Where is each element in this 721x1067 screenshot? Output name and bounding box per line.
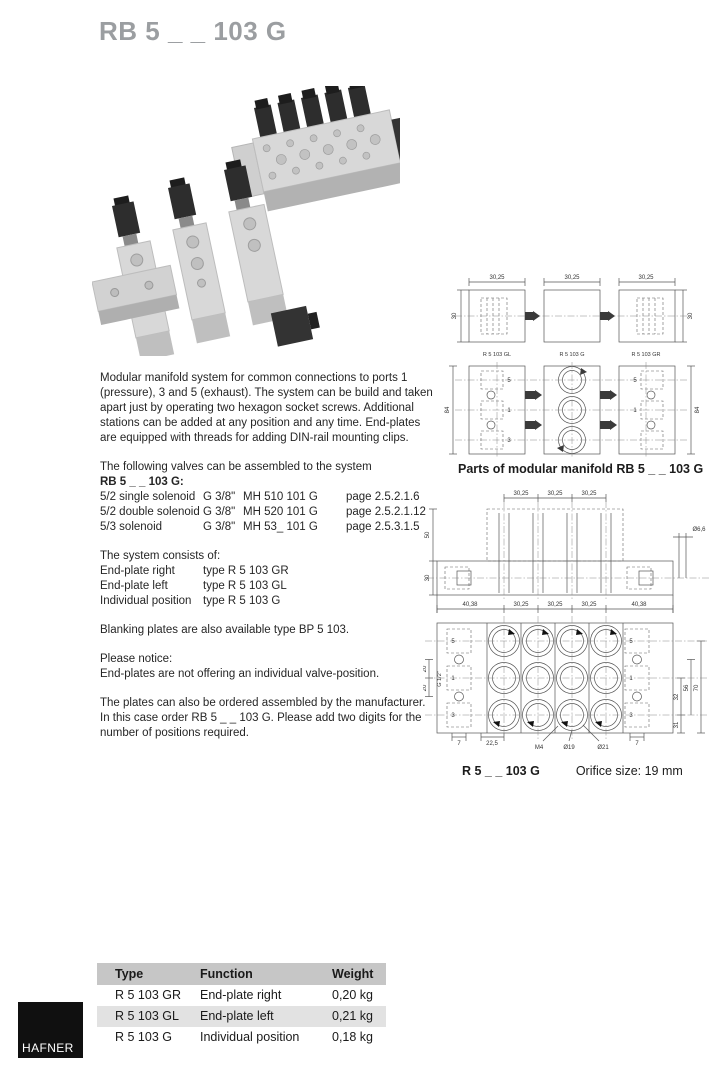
system-value: type R 5 103 G <box>203 594 433 609</box>
dim-label: 7 <box>635 741 639 747</box>
dim-label: 30,25 <box>581 491 597 497</box>
valve-type: MH 53_ 101 G <box>243 520 346 535</box>
port-number: 1 <box>629 676 633 682</box>
system-label: End-plate left <box>100 579 203 594</box>
port-number: 3 <box>629 713 633 719</box>
dim-label: 30,25 <box>489 275 505 281</box>
dim-label: 30,25 <box>581 602 597 608</box>
port-number: 5 <box>507 378 511 384</box>
hafner-logo: HAFNER <box>18 1002 83 1058</box>
dim-label: Ø21 <box>597 745 609 751</box>
dim-label: 30,25 <box>547 602 563 608</box>
dim-label: 50 <box>425 531 431 538</box>
valve-type: MH 520 101 G <box>243 505 346 520</box>
cell-function: Individual position <box>200 1027 332 1048</box>
valve-row: 5/2 single solenoid G 3/8" MH 510 101 G … <box>100 490 433 505</box>
dim-label: M4 <box>535 745 544 751</box>
cell-weight: 0,18 kg <box>332 1027 386 1048</box>
valve-row: 5/3 solenoid G 3/8" MH 53_ 101 G page 2.… <box>100 520 433 535</box>
system-row: Individual position type R 5 103 G <box>100 594 433 609</box>
dim-label: 30 <box>452 312 458 319</box>
valve-thread: G 3/8" <box>203 505 243 520</box>
catalog-page: RB 5 _ _ 103 G <box>0 0 721 1067</box>
dim-label: 84 <box>695 406 701 413</box>
valve-thread: G 3/8" <box>203 520 243 535</box>
port-number: 1 <box>451 676 455 682</box>
dim-label: 20 <box>423 665 428 672</box>
part-label: R 5 103 GR <box>631 352 660 358</box>
notice-title: Please notice: <box>100 652 433 667</box>
cell-type: R 5 103 GL <box>115 1006 200 1027</box>
fig1-caption: Parts of modular manifold RB 5 _ _ 103 G <box>458 462 703 476</box>
blanking-note: Blanking plates are also available type … <box>100 623 433 638</box>
system-label: Individual position <box>100 594 203 609</box>
dim-label: 32 <box>674 693 680 700</box>
cell-type: R 5 103 G <box>115 1027 200 1048</box>
system-value: type R 5 103 GL <box>203 579 433 594</box>
cell-function: End-plate left <box>200 1006 332 1027</box>
port-number: 3 <box>507 438 511 444</box>
system-value: type R 5 103 GR <box>203 564 433 579</box>
port-number: 5 <box>451 639 455 645</box>
dim-label: 20 <box>423 684 428 691</box>
fig-assembly-drawing: 30,25 30,25 30,25 50 30 Ø6,6 40,38 30,25… <box>423 483 715 757</box>
part-label: R 5 103 GL <box>483 352 511 358</box>
notice-body: End-plates are not offering an individua… <box>100 667 433 682</box>
port-number: 1 <box>633 408 637 414</box>
port-number: 5 <box>629 639 633 645</box>
dim-label: Ø19 <box>563 745 575 751</box>
body-text: Modular manifold system for common conne… <box>100 371 433 741</box>
system-row: End-plate left type R 5 103 GL <box>100 579 433 594</box>
dim-label: 30,25 <box>513 491 529 497</box>
valve-page: page 2.5.2.1.6 <box>346 490 433 505</box>
port-number: 3 <box>451 713 455 719</box>
part-label: R 5 103 G <box>559 352 584 358</box>
dim-label: 30,25 <box>547 491 563 497</box>
cell-weight: 0,20 kg <box>332 985 386 1006</box>
valve-function: 5/2 single solenoid <box>100 490 203 505</box>
thread-label: G 1/2" <box>437 671 443 686</box>
spec-table: Type Function Weight R 5 103 GR End-plat… <box>97 963 386 1048</box>
dim-label: 40,38 <box>631 602 647 608</box>
dim-label: 30,25 <box>638 275 654 281</box>
valve-row: 5/2 double solenoid G 3/8" MH 520 101 G … <box>100 505 433 520</box>
table-row: R 5 103 GR End-plate right 0,20 kg <box>97 985 386 1006</box>
dim-label: 56 <box>684 684 690 691</box>
dim-label: 30,25 <box>564 275 580 281</box>
fig-parts-drawing: 30,25 30,25 30,25 30 30 84 84 5 1 3 5 1 … <box>443 268 701 460</box>
valve-type: MH 510 101 G <box>243 490 346 505</box>
dim-label: Ø6,6 <box>692 527 706 533</box>
fig2-orifice: Orifice size: 19 mm <box>576 764 683 778</box>
cell-type: R 5 103 GR <box>115 985 200 1006</box>
product-photo <box>92 86 400 356</box>
fig2-caption: R 5 _ _ 103 G Orifice size: 19 mm <box>462 764 683 778</box>
dim-label: 70 <box>694 684 700 691</box>
valve-function: 5/3 solenoid <box>100 520 203 535</box>
header-type: Type <box>115 963 200 985</box>
system-row: End-plate right type R 5 103 GR <box>100 564 433 579</box>
port-number: 1 <box>507 408 511 414</box>
valve-function: 5/2 double solenoid <box>100 505 203 520</box>
fig2-type: R 5 _ _ 103 G <box>462 764 540 778</box>
logo-text: HAFNER <box>22 1041 74 1055</box>
ordering-note: The plates can also be ordered assembled… <box>100 696 433 741</box>
dim-label: 31 <box>674 721 680 728</box>
table-row: R 5 103 GL End-plate left 0,21 kg <box>97 1006 386 1027</box>
valves-lead-type: RB 5 _ _ 103 G: <box>100 475 433 490</box>
dim-label: 30 <box>425 574 431 581</box>
dim-label: 40,38 <box>462 602 478 608</box>
dim-label: 30 <box>688 312 694 319</box>
header-function: Function <box>200 963 332 985</box>
dim-label: 84 <box>445 406 451 413</box>
cell-weight: 0,21 kg <box>332 1006 386 1027</box>
port-number: 5 <box>633 378 637 384</box>
system-lead: The system consists of: <box>100 549 433 564</box>
page-title: RB 5 _ _ 103 G <box>99 16 287 47</box>
valve-page: page 2.5.2.1.12 <box>346 505 433 520</box>
system-label: End-plate right <box>100 564 203 579</box>
valves-lead: The following valves can be assembled to… <box>100 460 433 475</box>
valve-thread: G 3/8" <box>203 490 243 505</box>
valve-page: page 2.5.3.1.5 <box>346 520 433 535</box>
dim-label: 22,5 <box>486 741 498 747</box>
dim-label: 30,25 <box>513 602 529 608</box>
header-weight: Weight <box>332 963 386 985</box>
dim-label: 7 <box>457 741 461 747</box>
cell-function: End-plate right <box>200 985 332 1006</box>
table-row: R 5 103 G Individual position 0,18 kg <box>97 1027 386 1048</box>
intro-paragraph: Modular manifold system for common conne… <box>100 371 433 446</box>
table-header-row: Type Function Weight <box>97 963 386 985</box>
